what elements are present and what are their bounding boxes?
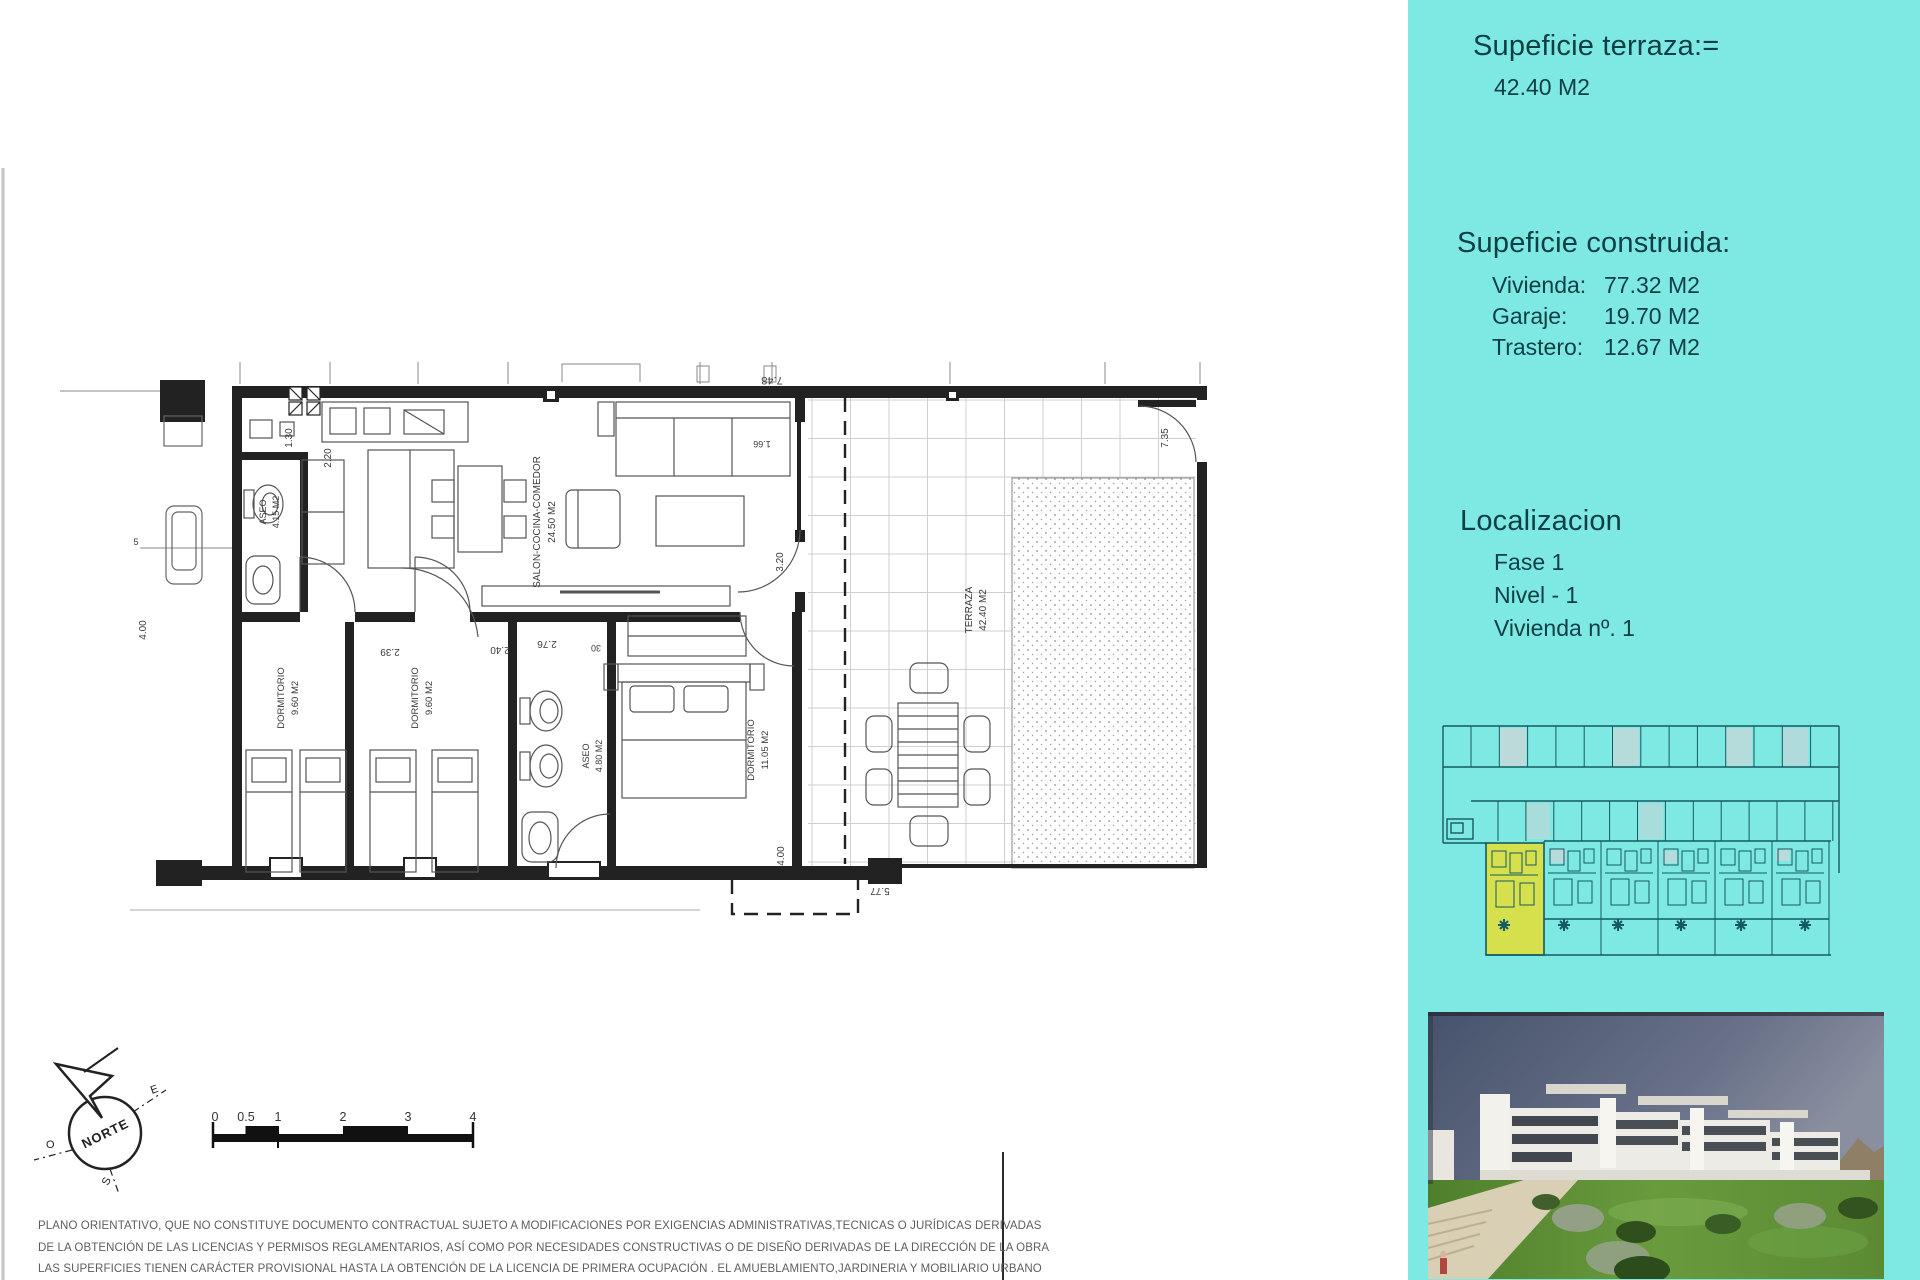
svg-text:DORMITORIO: DORMITORIO [410,667,421,729]
built-label: Garaje: [1492,303,1604,330]
svg-text:DORMITORIO: DORMITORIO [746,719,757,781]
built-row: Trastero: 12.67 M2 [1492,334,1700,361]
scale-tick: 3 [405,1110,412,1124]
floor-plan-drawing: ASEO4.15 M2SALON-COCINA-COMEDOR24.50 M2T… [0,0,1408,1280]
svg-text:4.15 M2: 4.15 M2 [271,496,281,529]
site-plan-thumbnail [1441,723,1843,964]
neighbour-fixtures [164,416,202,584]
disclaimer-text: PLANO ORIENTATIVO, QUE NO CONSTITUYE DOC… [38,1216,1003,1280]
disclaimer-line: DE LA OBTENCIÓN DE LAS LICENCIAS Y PERMI… [38,1238,1003,1260]
svg-text:24.50 M2: 24.50 M2 [547,501,558,543]
svg-text:TERRAZA: TERRAZA [964,586,975,633]
svg-text:11.05 M2: 11.05 M2 [760,731,771,770]
svg-text:4.00: 4.00 [138,620,149,640]
scale-tick: 0.5 [237,1110,254,1124]
svg-text:5.77: 5.77 [870,885,890,896]
location-item: Vivienda nº. 1 [1494,615,1635,642]
location-item: Nivel - 1 [1494,582,1578,609]
svg-text:9.60 M2: 9.60 M2 [424,681,435,715]
photo-person [1440,1251,1447,1274]
built-label: Trastero: [1492,334,1604,361]
building-photo [1428,1012,1884,1280]
site-plan-tints [1500,728,1808,863]
built-value: 77.32 M2 [1604,272,1700,299]
scale-bar: 0 0.5 1 2 3 4 [212,1110,477,1148]
svg-text:2.76: 2.76 [537,638,557,649]
svg-text:DORMITORIO: DORMITORIO [276,667,287,729]
furniture [244,402,990,872]
info-panel: Supeficie terraza:= 42.40 M2 Supeficie c… [1408,0,1920,1280]
north-compass: NORTE E O S [34,1048,166,1194]
svg-text:5: 5 [133,537,138,547]
svg-text:7.35: 7.35 [1160,428,1171,448]
scale-tick: 0 [212,1110,219,1124]
terrace-heading: Supeficie terraza:= [1473,30,1719,63]
svg-text:ASEO: ASEO [581,743,591,768]
compass-east-label: E [149,1083,160,1097]
highlighted-unit [1486,843,1544,955]
svg-text:ASEO: ASEO [258,499,268,524]
svg-text:7.48: 7.48 [761,374,782,386]
disclaimer-line: LAS SUPERFICIES TIENEN CARÁCTER PROVISIO… [38,1259,1003,1280]
built-row: Garaje: 19.70 M2 [1492,303,1700,330]
compass-south-label: S [100,1176,114,1188]
svg-text:SALON-COCINA-COMEDOR: SALON-COCINA-COMEDOR [532,456,543,588]
svg-text:1.30: 1.30 [284,428,295,448]
svg-text:3.20: 3.20 [775,552,786,572]
document-page: ASEO4.15 M2SALON-COCINA-COMEDOR24.50 M2T… [0,0,1920,1280]
svg-text:42.40 M2: 42.40 M2 [978,589,989,631]
compass-north-label: NORTE [79,1116,131,1152]
north-arrow-icon [56,1064,112,1118]
svg-text:4.80 M2: 4.80 M2 [594,740,604,773]
svg-text:9.60 M2: 9.60 M2 [290,681,301,715]
built-label: Vivienda: [1492,272,1604,299]
built-value: 19.70 M2 [1604,303,1700,330]
svg-text:2.40: 2.40 [490,644,510,655]
compass-west-label: O [46,1139,55,1151]
built-value: 12.67 M2 [1604,334,1700,361]
scale-tick: 2 [340,1110,347,1124]
built-heading: Supeficie construida: [1457,227,1730,260]
svg-text:30: 30 [591,643,601,653]
location-heading: Localizacion [1460,505,1622,538]
svg-text:4.00: 4.00 [776,846,787,866]
scale-tick: 1 [275,1110,282,1124]
scale-tick: 4 [470,1110,477,1124]
disclaimer-line: PLANO ORIENTATIVO, QUE NO CONSTITUYE DOC… [38,1216,1003,1238]
built-row: Vivienda: 77.32 M2 [1492,272,1700,299]
terrace-value: 42.40 M2 [1494,74,1590,101]
svg-text:2.20: 2.20 [323,448,334,468]
location-item: Fase 1 [1494,549,1564,576]
terrace-planter [1012,478,1194,868]
svg-text:2.39: 2.39 [380,646,400,657]
svg-text:1.66: 1.66 [753,439,771,449]
